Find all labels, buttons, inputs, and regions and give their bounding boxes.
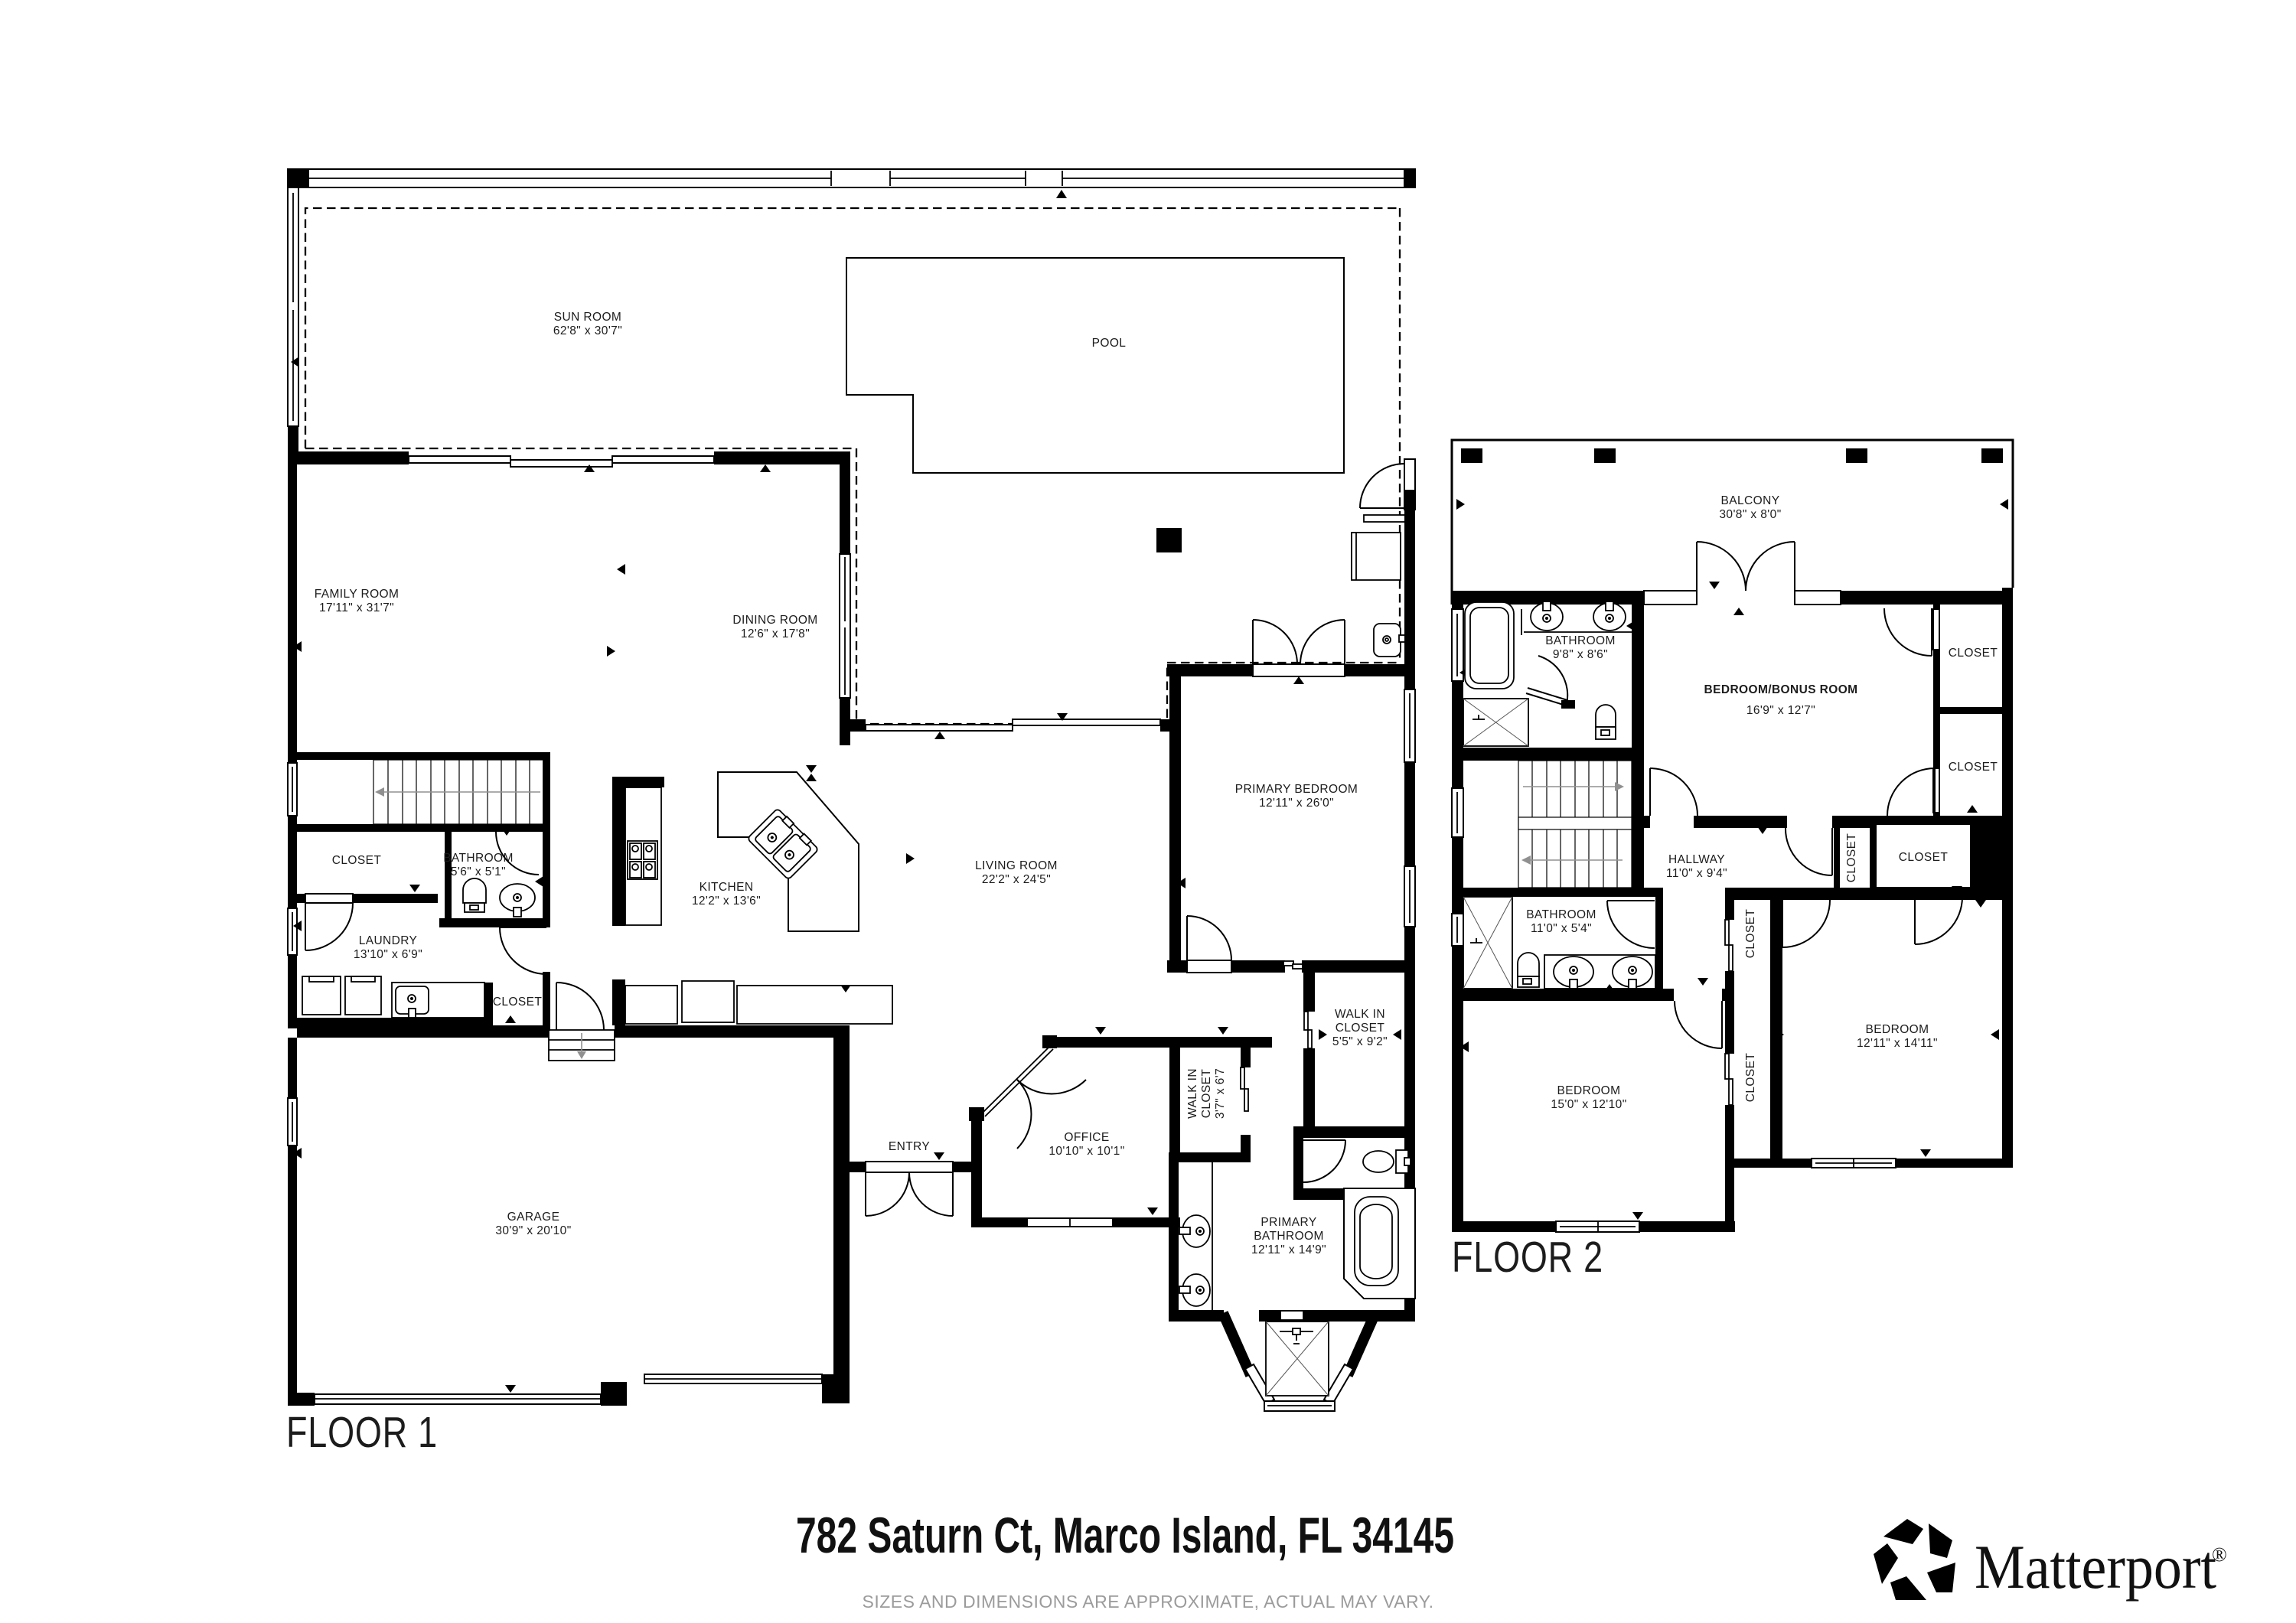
svg-text:BATHROOM: BATHROOM [1254,1230,1324,1243]
svg-text:12'6" x 17'8": 12'6" x 17'8" [741,627,810,640]
svg-text:BATHROOM: BATHROOM [1526,908,1596,921]
svg-text:BEDROOM/BONUS ROOM: BEDROOM/BONUS ROOM [1704,683,1858,696]
svg-text:BEDROOM: BEDROOM [1866,1023,1929,1036]
svg-text:30'9" x 20'10": 30'9" x 20'10" [495,1224,571,1237]
svg-text:WALK IN: WALK IN [1186,1068,1199,1119]
svg-text:12'11" x 14'11": 12'11" x 14'11" [1857,1037,1938,1050]
svg-text:KITCHEN: KITCHEN [700,881,754,894]
svg-text:782 Saturn Ct, Marco Island, F: 782 Saturn Ct, Marco Island, FL 34145 [796,1507,1454,1563]
svg-text:®: ® [2212,1543,2227,1566]
svg-text:3'7" x 6'7: 3'7" x 6'7 [1214,1068,1227,1119]
svg-text:FLOOR 1: FLOOR 1 [286,1408,438,1457]
svg-text:62'8" x 30'7": 62'8" x 30'7" [553,324,622,337]
svg-text:CLOSET: CLOSET [1744,1053,1757,1103]
svg-text:FLOOR 2: FLOOR 2 [1452,1233,1603,1282]
svg-text:CLOSET: CLOSET [1744,909,1757,959]
svg-text:PRIMARY BEDROOM: PRIMARY BEDROOM [1235,783,1358,796]
svg-text:12'11" x 14'9": 12'11" x 14'9" [1251,1243,1326,1256]
svg-text:30'8" x 8'0": 30'8" x 8'0" [1719,508,1781,521]
svg-text:BALCONY: BALCONY [1721,494,1780,507]
svg-text:GARAGE: GARAGE [507,1211,560,1224]
svg-text:10'10" x 10'1": 10'10" x 10'1" [1049,1145,1124,1158]
svg-text:CLOSET: CLOSET [1899,851,1949,864]
svg-text:CLOSET: CLOSET [493,996,543,1009]
svg-text:OFFICE: OFFICE [1064,1131,1109,1144]
svg-text:CLOSET: CLOSET [332,854,382,867]
svg-text:WALK IN: WALK IN [1335,1008,1385,1021]
svg-text:17'11" x 31'7": 17'11" x 31'7" [319,601,394,614]
svg-text:15'0" x 12'10": 15'0" x 12'10" [1551,1098,1626,1111]
svg-text:CLOSET: CLOSET [1949,647,1998,660]
svg-text:LIVING ROOM: LIVING ROOM [975,859,1058,872]
svg-text:CLOSET: CLOSET [1200,1069,1213,1119]
svg-text:CLOSET: CLOSET [1949,761,1998,774]
svg-text:CLOSET: CLOSET [1336,1022,1385,1035]
svg-text:12'11" x 26'0": 12'11" x 26'0" [1259,797,1334,810]
svg-text:9'8" x 8'6": 9'8" x 8'6" [1553,648,1608,661]
svg-text:SUN ROOM: SUN ROOM [554,311,621,324]
svg-text:FAMILY ROOM: FAMILY ROOM [315,588,400,601]
svg-text:12'2" x 13'6": 12'2" x 13'6" [692,895,761,908]
svg-text:11'0" x 9'4": 11'0" x 9'4" [1666,867,1727,880]
svg-text:11'0" x 5'4": 11'0" x 5'4" [1531,922,1592,935]
svg-text:ENTRY: ENTRY [889,1140,930,1153]
svg-text:Matterport: Matterport [1975,1532,2216,1602]
svg-text:5'5" x 9'2": 5'5" x 9'2" [1332,1035,1388,1048]
svg-text:13'10" x 6'9": 13'10" x 6'9" [354,948,422,961]
svg-text:HALLWAY: HALLWAY [1668,853,1725,866]
svg-text:BATHROOM: BATHROOM [1545,634,1616,647]
svg-text:16'9" x 12'7": 16'9" x 12'7" [1746,704,1815,717]
svg-text:PRIMARY: PRIMARY [1261,1216,1316,1229]
svg-text:BEDROOM: BEDROOM [1557,1084,1621,1097]
svg-text:SIZES AND DIMENSIONS ARE APPRO: SIZES AND DIMENSIONS ARE APPROXIMATE, AC… [862,1592,1433,1612]
svg-text:5'6" x 5'1": 5'6" x 5'1" [451,865,506,878]
svg-text:LAUNDRY: LAUNDRY [359,934,418,947]
svg-text:POOL: POOL [1092,337,1127,350]
svg-text:CLOSET: CLOSET [1845,833,1858,883]
svg-text:DINING ROOM: DINING ROOM [732,614,817,627]
svg-text:BATHROOM: BATHROOM [443,852,514,865]
svg-text:22'2" x 24'5": 22'2" x 24'5" [982,873,1051,886]
